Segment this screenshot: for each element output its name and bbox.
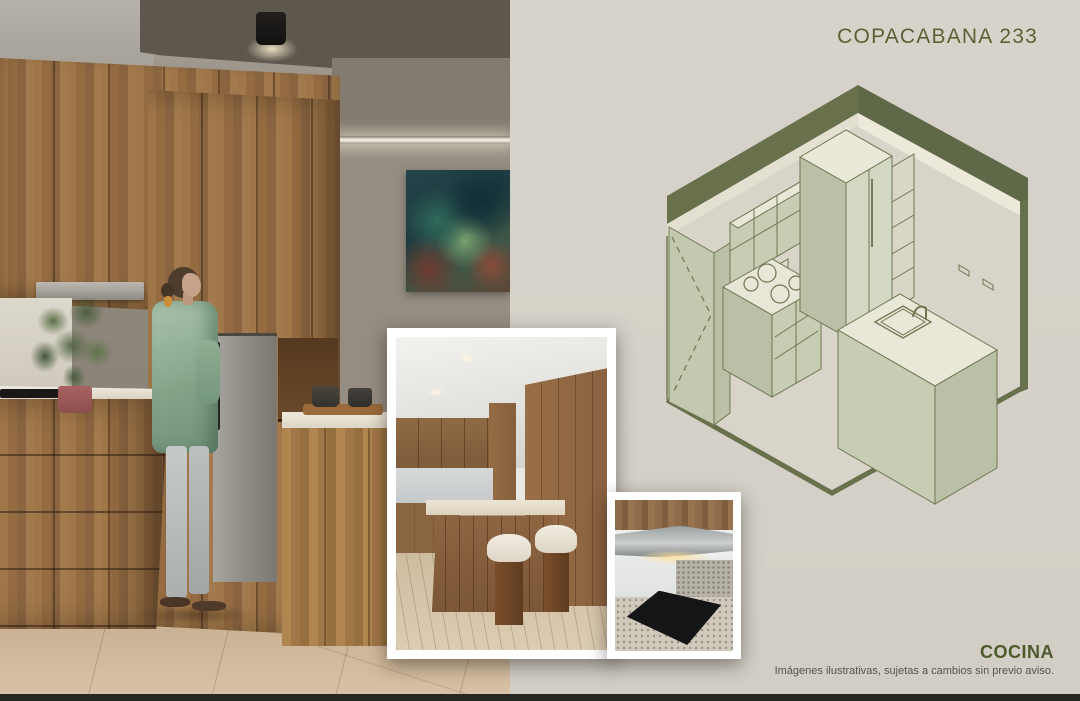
cup bbox=[348, 388, 372, 407]
inset-photo-kitchen bbox=[387, 328, 616, 659]
inset-photo-kitchen-image bbox=[396, 337, 607, 650]
cabinet-seams bbox=[0, 399, 168, 629]
stool-cushion bbox=[535, 525, 577, 553]
presentation-slide: COPACABANA 233 bbox=[0, 0, 1080, 701]
hair-scrunchie bbox=[164, 296, 172, 307]
woman-sleeve bbox=[196, 340, 220, 404]
sandal bbox=[192, 601, 226, 611]
wall-edge-right bbox=[1020, 198, 1028, 392]
inset-photo-cooktop-image bbox=[615, 500, 733, 651]
marble-backsplash bbox=[396, 468, 493, 502]
woman-pants bbox=[166, 446, 187, 598]
upper-cabinets bbox=[396, 418, 493, 470]
upper-cabinet bbox=[615, 500, 733, 530]
door-wall bbox=[669, 227, 714, 425]
woman-face bbox=[182, 273, 201, 297]
fridge-face-sw bbox=[800, 157, 846, 337]
shelf-unit bbox=[892, 154, 914, 310]
refrigerator bbox=[213, 333, 277, 582]
caption-block: COCINA Imágenes ilustrativas, sujetas a … bbox=[775, 642, 1054, 677]
section-title: COCINA bbox=[775, 642, 1054, 663]
ceiling-spotlight bbox=[256, 12, 286, 45]
stool-legs bbox=[495, 556, 522, 625]
potted-plant bbox=[22, 292, 126, 396]
woman-pants bbox=[189, 446, 209, 594]
wall-soffit bbox=[332, 58, 510, 138]
axonometric-kitchen-drawing bbox=[650, 75, 1050, 505]
abstract-painting bbox=[406, 170, 510, 292]
island-body bbox=[282, 428, 387, 646]
inset-photo-cooktop bbox=[607, 492, 741, 659]
stool-cushion bbox=[487, 534, 531, 562]
project-title: COPACABANA 233 bbox=[837, 25, 1038, 49]
cup bbox=[312, 386, 339, 407]
sandal bbox=[160, 597, 190, 607]
plant-pot bbox=[58, 386, 92, 413]
recessed-light bbox=[428, 387, 444, 397]
bottom-bar bbox=[0, 694, 1080, 701]
island-countertop bbox=[426, 500, 565, 516]
cove-light bbox=[332, 136, 510, 144]
stool-legs bbox=[544, 547, 569, 613]
recessed-light bbox=[459, 353, 475, 363]
disclaimer-text: Imágenes ilustrativas, sujetas a cambios… bbox=[775, 665, 1054, 677]
